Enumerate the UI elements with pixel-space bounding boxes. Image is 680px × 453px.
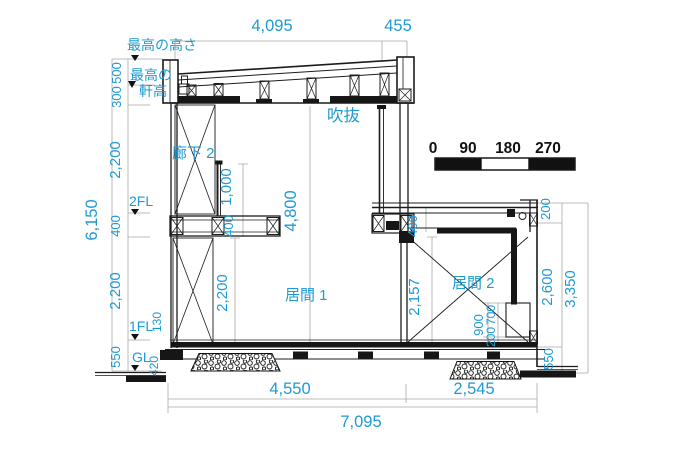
dim-roof-span: 4,095 bbox=[251, 17, 292, 35]
dim-living2-ceiling: 2,157 bbox=[406, 278, 423, 316]
dim-void-h: 4,800 bbox=[282, 190, 300, 231]
dim-2f-ceiling: 2,200 bbox=[107, 141, 124, 179]
dim-total2-h: 3,350 bbox=[562, 270, 579, 308]
annex-low-window bbox=[506, 303, 530, 337]
dim-total-h: 6,150 bbox=[83, 199, 101, 240]
fl1-arrow bbox=[131, 334, 139, 340]
scale-tick-180: 180 bbox=[495, 140, 521, 157]
brace-panel-1f bbox=[173, 238, 213, 344]
label-corridor2: 廊下 2 bbox=[172, 145, 215, 162]
dim-span-living2: 2,545 bbox=[453, 380, 494, 398]
dim-roof-h: 300 bbox=[109, 86, 124, 108]
floor-and-foundation bbox=[95, 340, 578, 382]
section-drawing: 0 90 180 270 4,095 455 最高の高さ 最高の 軒高 2FL … bbox=[0, 0, 680, 453]
dim-living2-h: 2,600 bbox=[539, 268, 556, 306]
dim-parapet2-h: 200 bbox=[538, 198, 553, 220]
label-living2: 居間 2 bbox=[452, 275, 495, 292]
label-2fl: 2FL bbox=[129, 193, 153, 209]
dim-span-total: 7,095 bbox=[340, 413, 381, 431]
dim-railing-h: 1,000 bbox=[218, 168, 235, 206]
scale-tick-90: 90 bbox=[459, 140, 476, 157]
gravel-right bbox=[450, 362, 521, 380]
gravel-left bbox=[191, 354, 280, 372]
label-max-height: 最高の高さ bbox=[127, 37, 197, 53]
scale-bar: 0 90 180 270 bbox=[429, 140, 575, 170]
dim-railing-base: 400 bbox=[221, 215, 236, 237]
dim-parapet-h: 500 bbox=[109, 62, 124, 84]
label-living1: 居間 1 bbox=[285, 287, 328, 304]
scale-tick-270: 270 bbox=[535, 140, 561, 157]
annex-ceiling bbox=[408, 228, 517, 305]
label-void: 吹抜 bbox=[327, 106, 360, 125]
scale-tick-0: 0 bbox=[429, 140, 438, 157]
dim-sill-lower: 200 bbox=[484, 327, 498, 347]
dim-sill-upper: 700 bbox=[484, 305, 498, 325]
fl2-arrow bbox=[131, 209, 139, 215]
label-max-eave-line1: 最高の bbox=[130, 67, 172, 83]
dim-foundation-h: 420 bbox=[147, 356, 161, 376]
dim-roof2-depth: 400 bbox=[405, 215, 420, 237]
dim-floor-depth: 400 bbox=[108, 215, 123, 237]
architectural-section-page: 0 90 180 270 4,095 455 最高の高さ 最高の 軒高 2FL … bbox=[0, 0, 680, 453]
gl-arrow bbox=[131, 365, 139, 371]
label-max-eave-line2: 軒高 bbox=[139, 83, 167, 99]
dim-floor-edge: 130 bbox=[150, 312, 164, 332]
dim-1f-ceiling: 2,200 bbox=[107, 272, 124, 310]
main-roof bbox=[163, 57, 414, 103]
dim-span-living1: 4,550 bbox=[269, 380, 310, 398]
roof-posts bbox=[187, 73, 389, 99]
max-height-arrow bbox=[131, 55, 139, 61]
left-wall bbox=[171, 103, 177, 348]
dim-base-h: 550 bbox=[108, 346, 123, 368]
dim-base2-h: 550 bbox=[541, 348, 556, 370]
dim-living1-wall: 2,200 bbox=[214, 274, 231, 312]
dim-roof-overhang: 455 bbox=[384, 17, 412, 35]
void-window bbox=[377, 105, 386, 214]
